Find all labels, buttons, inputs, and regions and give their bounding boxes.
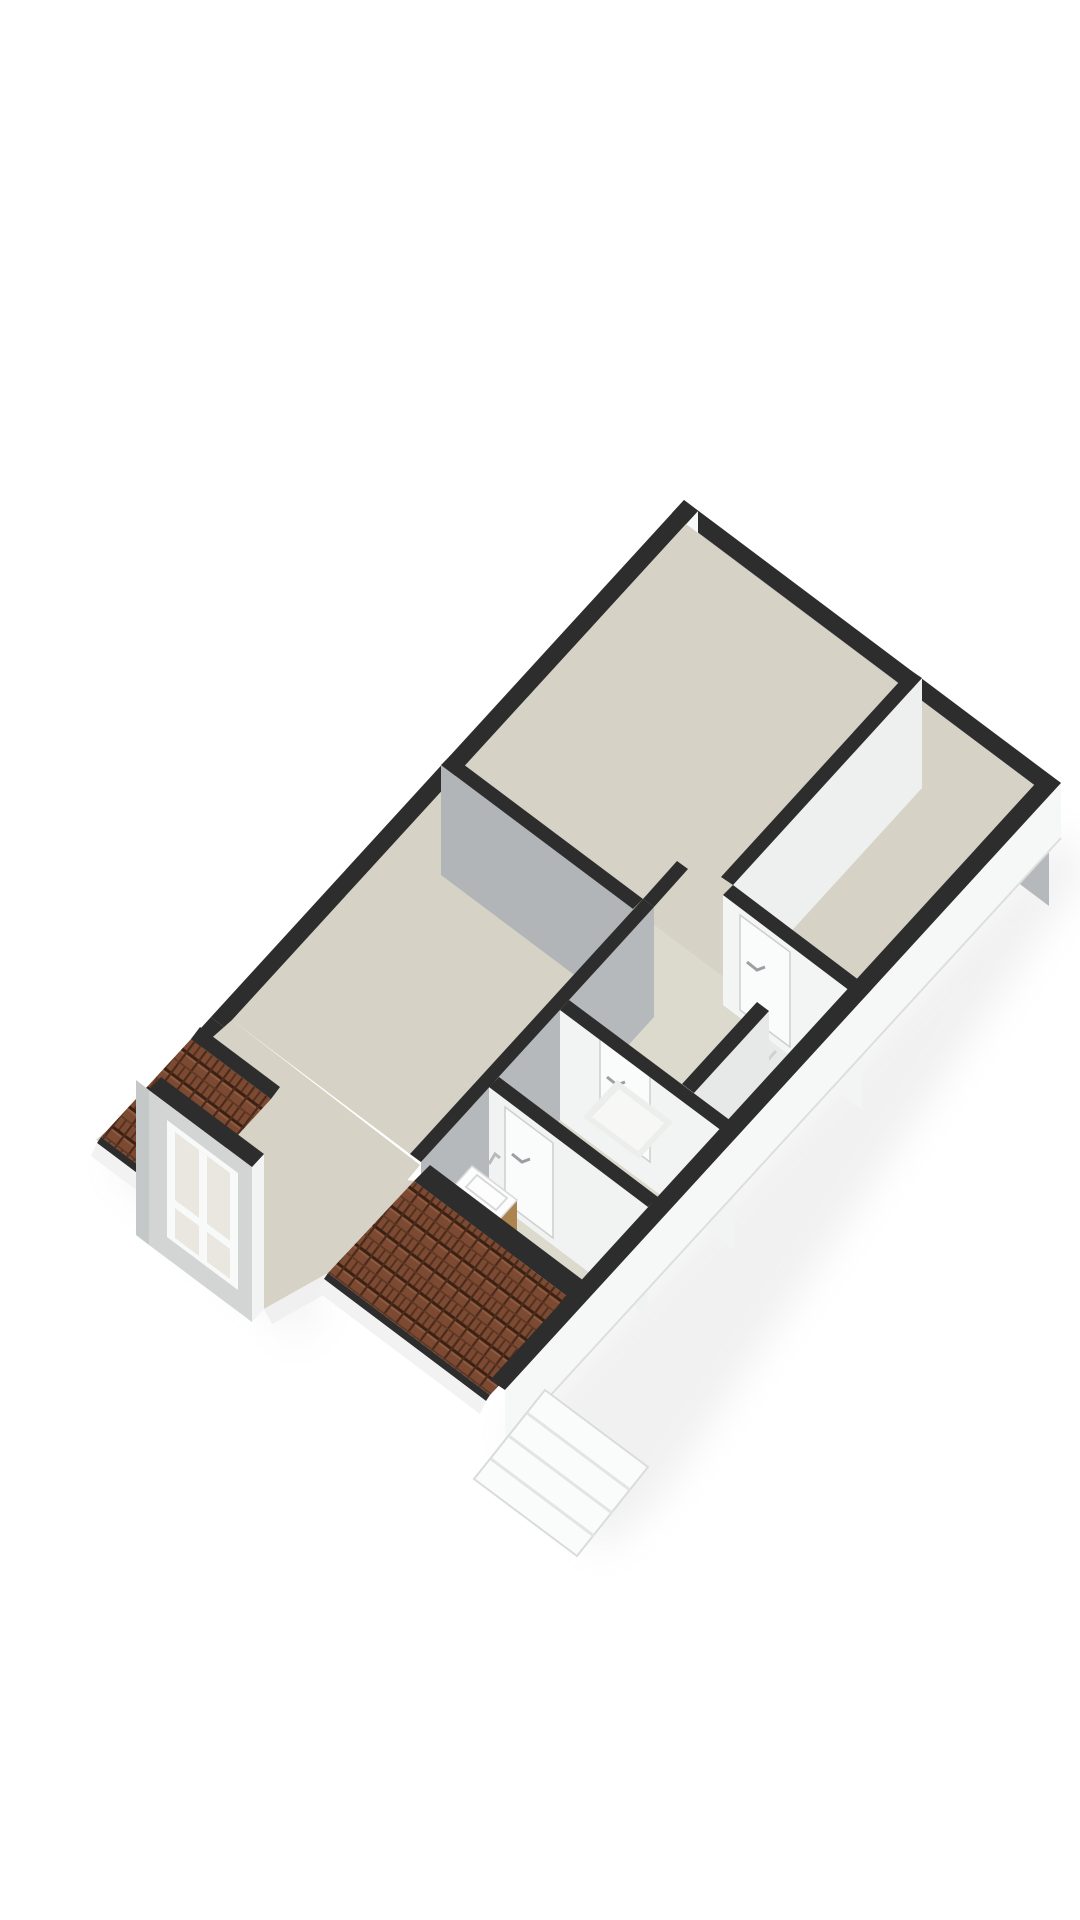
dormer-left-side — [136, 1080, 149, 1245]
floor-plan-stage — [0, 0, 1080, 1920]
dormer-right-side — [252, 1154, 264, 1322]
dormer-window-mullion-v — [199, 1150, 207, 1262]
floor-plan-3d — [0, 0, 1080, 1920]
